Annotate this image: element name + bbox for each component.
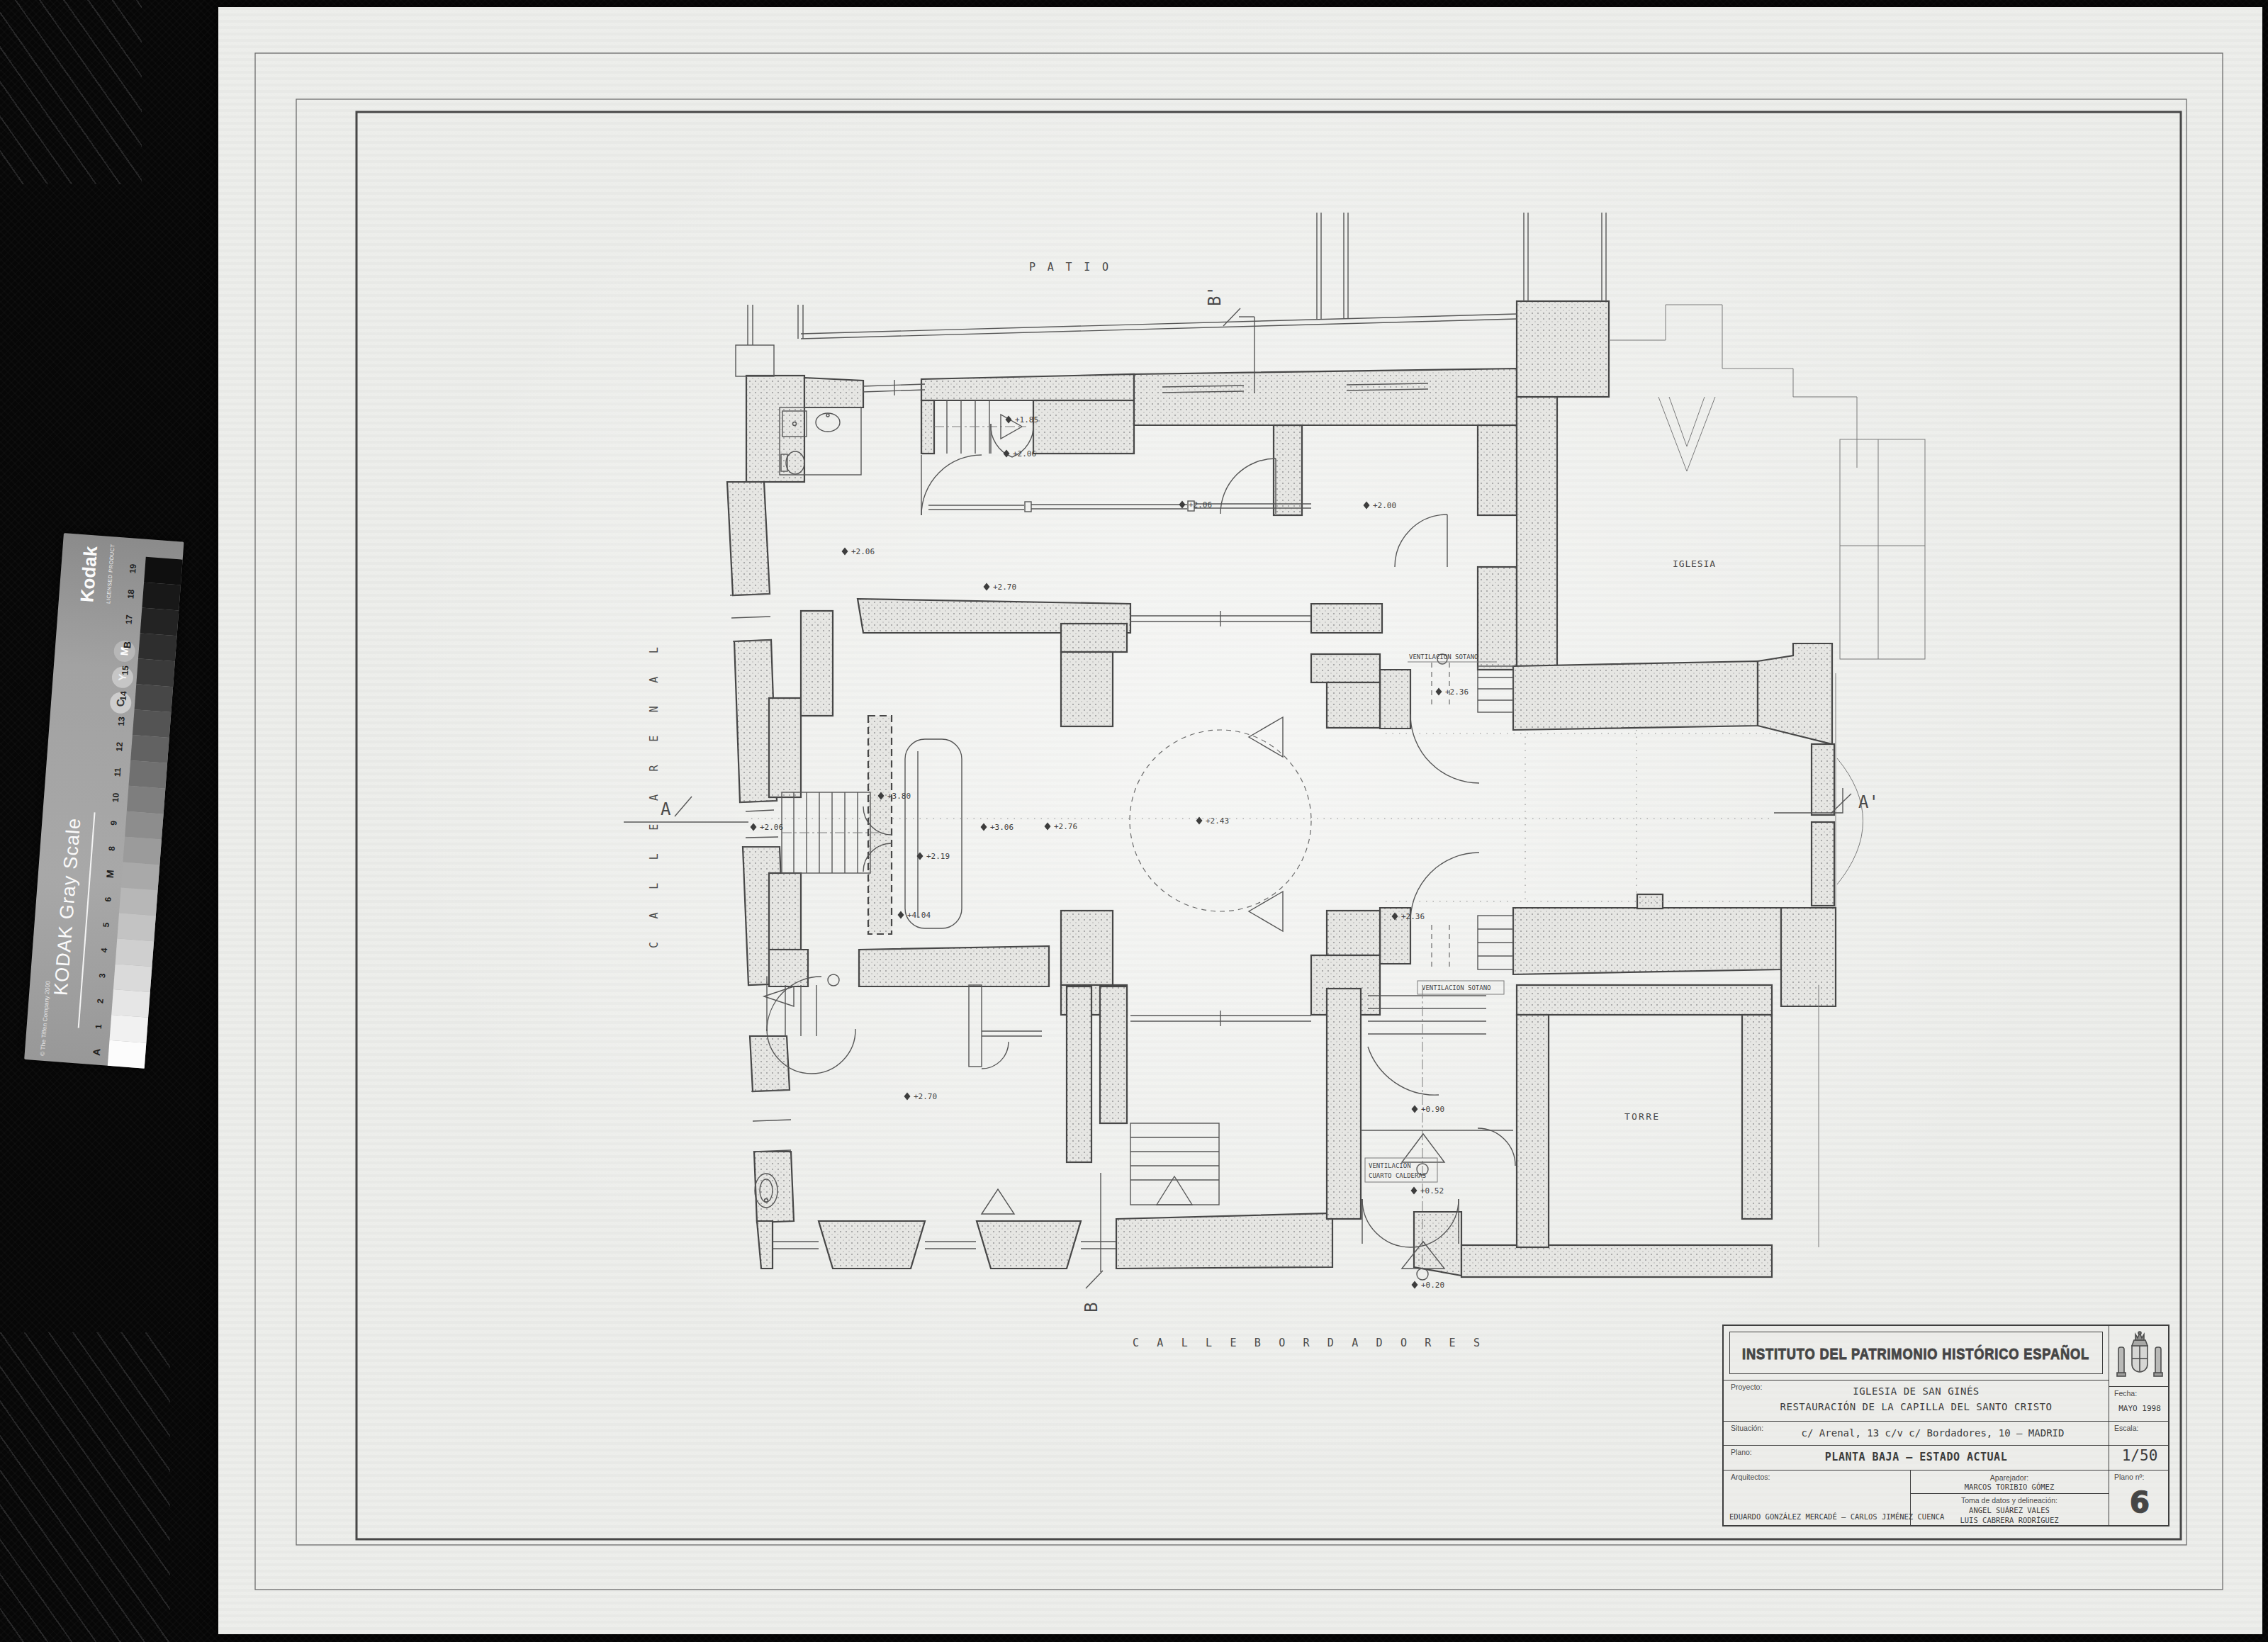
gray-patch-M [121, 862, 160, 891]
situacion-label: Situación: [1731, 1424, 1763, 1432]
elevation-marker: +0.90 [1412, 1105, 1445, 1114]
svg-text:+2.06: +2.06 [851, 547, 875, 556]
gray-patch-15 [136, 658, 175, 687]
gray-patch-A [108, 1040, 147, 1069]
gray-patch-14 [135, 684, 174, 712]
scale-label: 5 [93, 913, 120, 937]
label-section-a-prime: A' [1858, 792, 1879, 812]
elevation-marker: +2.70 [984, 583, 1017, 592]
escala-label: Escala: [2114, 1424, 2138, 1432]
label-patio: P A T I O [1029, 261, 1108, 274]
kodak-licensed-label: LICENSED PRODUCT [104, 531, 117, 616]
label-section-b-prime: B' [1205, 286, 1225, 306]
gray-patch-2 [111, 989, 150, 1018]
fecha-value: MAYO 1998 [2109, 1404, 2171, 1413]
svg-text:+2.06: +2.06 [1189, 500, 1212, 510]
label-vent-sotano-low: VENTILACION SOTANO [1417, 981, 1504, 994]
svg-text:+2.19: +2.19 [926, 852, 950, 861]
elevation-marker: +2.06 [1179, 500, 1213, 510]
elevation-marker: +2.19 [917, 852, 950, 861]
coat-of-arms-cell [2109, 1326, 2171, 1386]
toma-value1: ANGEL SUÁREZ VALES [1910, 1506, 2109, 1514]
svg-text:VENTILACION: VENTILACION [1369, 1162, 1411, 1169]
titleblock-line [1910, 1493, 2109, 1494]
elevation-marker: +2.76 [1045, 822, 1078, 831]
elevation-marker: +1.85 [1006, 415, 1039, 424]
aparejador-label: Aparejador: [1910, 1473, 2109, 1482]
svg-text:+2.70: +2.70 [914, 1092, 937, 1101]
plano-num-value: 6 [2109, 1480, 2171, 1523]
titleblock-line [2109, 1386, 2169, 1387]
titleblock-line [1724, 1470, 2169, 1471]
proyecto-line1: IGLESIA DE SAN GINÉS [1724, 1385, 2109, 1397]
svg-text:+3.80: +3.80 [887, 792, 911, 801]
elevation-marker: +2.00 [1364, 501, 1397, 510]
scale-label: 14 [110, 685, 137, 708]
titleblock-line [1724, 1380, 2109, 1380]
svg-text:VENTILACION SOTANO: VENTILACION SOTANO [1422, 984, 1491, 991]
label-torre: TORRE [1624, 1111, 1658, 1122]
scale-label: 6 [94, 888, 121, 911]
escala-value: 1/50 [2109, 1447, 2171, 1464]
gray-patch-4 [116, 938, 155, 967]
scale-label: 10 [102, 786, 129, 809]
elevation-marker: +0.20 [1412, 1281, 1445, 1290]
arquitectos-label: Arquitectos: [1731, 1473, 1770, 1481]
toma-label: Toma de datos y delineación: [1910, 1496, 2109, 1505]
elevation-marker: +2.36 [1436, 687, 1469, 697]
gray-patch-12 [130, 735, 169, 763]
scale-label: 8 [99, 837, 125, 860]
elevation-marker: +4.04 [898, 911, 931, 920]
gray-patch-B [138, 633, 177, 661]
svg-text:+2.06: +2.06 [760, 823, 783, 832]
kodak-brand: Kodak [75, 531, 103, 617]
elevation-marker: +2.06 [842, 547, 875, 556]
svg-text:+2.36: +2.36 [1401, 912, 1425, 921]
svg-text:INSTITUTO DEL PATRIMONIO HISTÓ: INSTITUTO DEL PATRIMONIO HISTÓRICO ESPAÑ… [1742, 1345, 2089, 1363]
archival-scan-page: { "colors":{"film_black":"#070707","pape… [0, 0, 2268, 1642]
kodak-copyright: © The Tiffen Company 2000 [37, 958, 53, 1079]
scale-label: 15 [112, 659, 139, 682]
aparejador-value: MARCOS TORIBIO GÓMEZ [1910, 1483, 2109, 1491]
scale-label: 17 [116, 608, 142, 631]
svg-text:+2.70: +2.70 [993, 583, 1016, 592]
svg-text:+2.76: +2.76 [1054, 822, 1077, 831]
gray-patch-19 [144, 557, 183, 585]
label-section-b: B [1082, 1303, 1101, 1312]
scale-label: 4 [91, 939, 118, 962]
titleblock-line [1724, 1445, 2169, 1446]
label-section-a: A [661, 799, 671, 819]
section-marks [624, 308, 1851, 1288]
label-calle-arenal: C A L L E A R E N A L [648, 647, 661, 948]
fecha-label: Fecha: [2114, 1389, 2137, 1398]
scale-label: 18 [118, 583, 145, 606]
scale-label: 2 [87, 989, 114, 1013]
toma-value2: LUIS CABRERA RODRÍGUEZ [1910, 1516, 2109, 1524]
scale-label: M [96, 862, 123, 886]
institute-header: INSTITUTO DEL PATRIMONIO HISTÓRICO ESPAÑ… [1730, 1332, 2101, 1373]
gray-patch-9 [125, 811, 164, 840]
gray-patch-18 [142, 583, 181, 611]
scale-label: 12 [106, 735, 133, 758]
svg-text:+4.04: +4.04 [907, 911, 931, 920]
plano-num-cell: 6 [2109, 1480, 2171, 1523]
elevation-marker: +2.06 [1004, 449, 1037, 459]
svg-text:+0.52: +0.52 [1420, 1186, 1444, 1196]
scale-label: 13 [108, 710, 135, 733]
svg-text:+3.06: +3.06 [990, 823, 1014, 832]
svg-text:+2.43: +2.43 [1206, 816, 1229, 826]
svg-text:+2.06: +2.06 [1013, 449, 1036, 459]
gray-patch-8 [123, 837, 162, 865]
elevation-marker: +3.06 [981, 823, 1014, 832]
gray-patch-11 [129, 760, 168, 789]
titleblock-line [1724, 1421, 2169, 1422]
scale-label: B [113, 634, 140, 657]
svg-text:VENTILACION SOTANO: VENTILACION SOTANO [1409, 653, 1478, 660]
svg-text:+0.90: +0.90 [1421, 1105, 1444, 1114]
situacion-value: c/ Arenal, 13 c/v c/ Bordadores, 10 – MA… [1766, 1427, 2099, 1439]
gray-patch-1 [110, 1015, 149, 1043]
gray-patch-13 [133, 709, 172, 738]
elevation-marker: +0.52 [1411, 1186, 1444, 1196]
scale-label: 11 [104, 760, 131, 784]
hatched-walls [727, 301, 1836, 1277]
gray-patch-17 [140, 608, 179, 636]
scale-label: 9 [100, 811, 127, 835]
gray-patch-6 [119, 887, 158, 916]
svg-text:+2.00: +2.00 [1373, 501, 1396, 510]
elevation-marker: +2.43 [1196, 816, 1230, 826]
svg-text:+1.85: +1.85 [1015, 415, 1038, 424]
scale-label: 3 [89, 965, 116, 988]
proyecto-line2: RESTAURACIÓN DE LA CAPILLA DEL SANTO CRI… [1724, 1401, 2109, 1412]
svg-text:+2.36: +2.36 [1445, 687, 1469, 697]
svg-text:CUARTO CALDERAS: CUARTO CALDERAS [1369, 1172, 1426, 1179]
elevation-marker: +2.06 [751, 823, 784, 832]
svg-text:6: 6 [2130, 1486, 2150, 1519]
plano-value: PLANTA BAJA – ESTADO ACTUAL [1724, 1451, 2109, 1463]
elevation-marker: +2.70 [904, 1092, 938, 1101]
gray-patch-10 [127, 786, 166, 814]
title-block: INSTITUTO DEL PATRIMONIO HISTÓRICO ESPAÑ… [1722, 1325, 2169, 1526]
spain-coat-of-arms-icon [2109, 1326, 2171, 1386]
scale-label: 1 [85, 1015, 112, 1038]
scale-label: A [83, 1040, 110, 1064]
institute-header-box: INSTITUTO DEL PATRIMONIO HISTÓRICO ESPAÑ… [1729, 1332, 2103, 1374]
svg-text:+0.20: +0.20 [1421, 1281, 1444, 1290]
label-vent-calderas: VENTILACION CUARTO CALDERAS [1365, 1158, 1437, 1182]
gray-patch-5 [117, 913, 156, 941]
gray-patch-3 [113, 964, 152, 992]
scale-label: 19 [119, 557, 146, 580]
label-iglesia: IGLESIA [1673, 558, 1715, 569]
label-calle-bordadores: C A L L E B O R D A D O R E S [1133, 1337, 1480, 1349]
